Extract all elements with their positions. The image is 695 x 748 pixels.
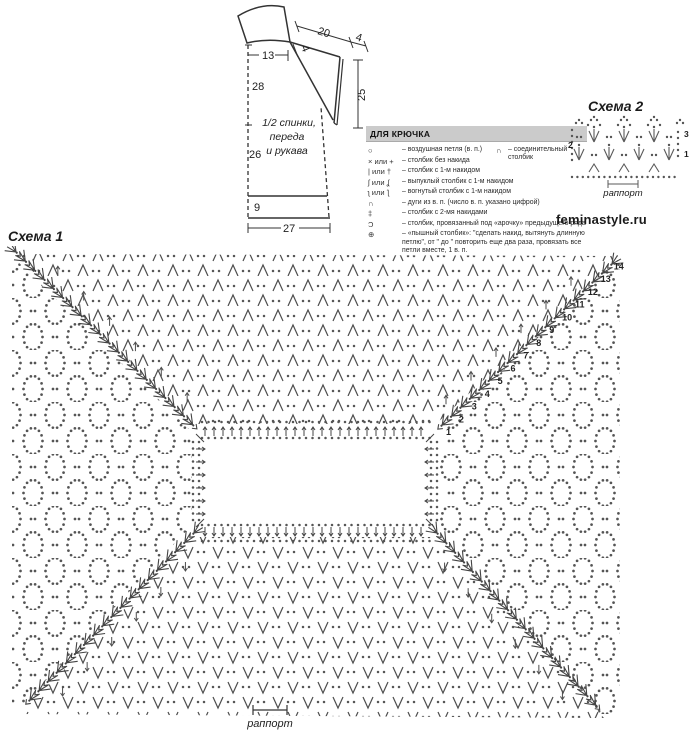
- chain-dot: [640, 136, 642, 138]
- chain-dot: [305, 524, 308, 527]
- chain-dot: [409, 524, 412, 527]
- chain-dot: [430, 499, 433, 502]
- chain-dot: [571, 159, 573, 161]
- chain-dot: [578, 144, 580, 146]
- chain-dot: [619, 176, 621, 178]
- chain-dot: [227, 540, 230, 543]
- chain-dot: [652, 176, 654, 178]
- chain-dot: [324, 540, 327, 543]
- chain-dot: [409, 437, 412, 440]
- chain-dot: [571, 129, 573, 131]
- chain-dot: [318, 540, 321, 543]
- chain-dot: [389, 524, 392, 527]
- chain-dot: [285, 540, 288, 543]
- chain-dot: [396, 421, 399, 424]
- chain-dot: [653, 126, 655, 128]
- chain-dot: [201, 524, 204, 527]
- chain-dot: [430, 519, 433, 522]
- chain-dot: [198, 499, 201, 502]
- chain-dot: [363, 437, 366, 440]
- chain-dot: [240, 437, 243, 440]
- chain-dot: [580, 136, 582, 138]
- legend-item: Ɔ– столбик, провязанный под «арочку» пре…: [366, 220, 587, 229]
- chain-dot: [436, 473, 439, 476]
- chain-dot: [198, 460, 201, 463]
- chain-dot: [430, 467, 433, 470]
- row-number: 3: [684, 129, 689, 139]
- chain-dot: [331, 540, 334, 543]
- dim-13: 13: [262, 50, 274, 62]
- chain-dot: [402, 421, 405, 424]
- chain-dot: [576, 136, 578, 138]
- legend-title: ДЛЯ КРЮЧКА: [366, 126, 587, 142]
- chain-dot: [344, 437, 347, 440]
- legend-item: | или †– столбик с 1-м накидом: [366, 167, 587, 176]
- chain-dot: [324, 421, 327, 424]
- chain-dot: [259, 437, 262, 440]
- legend-item-text: – столбик с 1-м накидом: [402, 167, 587, 176]
- chain-dot: [192, 499, 195, 502]
- chain-dot: [603, 176, 605, 178]
- chain-dot: [389, 540, 392, 543]
- chain-dot: [305, 437, 308, 440]
- chain-dot: [279, 421, 282, 424]
- chain-dot: [279, 524, 282, 527]
- chain-dot: [357, 524, 360, 527]
- schematic-outline: [238, 6, 343, 125]
- chain-dot: [677, 143, 679, 145]
- chain-dot: [436, 519, 439, 522]
- chain-dot: [370, 421, 373, 424]
- chain-dot: [198, 441, 201, 444]
- chain-dot: [344, 540, 347, 543]
- chain-dot: [370, 524, 373, 527]
- row-number: 11: [575, 300, 585, 310]
- chain-dot: [430, 512, 433, 515]
- chain-dot: [192, 519, 195, 522]
- chain-dot: [214, 540, 217, 543]
- row-number: 10: [562, 312, 572, 322]
- chain-dot: [666, 136, 668, 138]
- chain-dot: [198, 454, 201, 457]
- chain-dot: [266, 524, 269, 527]
- chain-dot: [409, 421, 412, 424]
- chain-dot: [311, 437, 314, 440]
- chain-dot: [246, 540, 249, 543]
- chain-dot: [590, 119, 592, 121]
- chain-dot: [422, 540, 425, 543]
- chain-dot: [240, 540, 243, 543]
- chain-dot: [207, 421, 210, 424]
- chain-dot: [285, 437, 288, 440]
- chain-dot: [402, 437, 405, 440]
- repeat-label: раппорт: [246, 718, 293, 730]
- chain-dot: [214, 437, 217, 440]
- chain-dot: [331, 437, 334, 440]
- chain-dot: [246, 437, 249, 440]
- chain-dot: [331, 421, 334, 424]
- chain-dot: [350, 540, 353, 543]
- chain-dot: [428, 540, 431, 543]
- chain-dot: [677, 149, 679, 151]
- chain-dot: [659, 124, 661, 126]
- chain-dot: [233, 540, 236, 543]
- chain-dot: [430, 454, 433, 457]
- chain-dot: [192, 473, 195, 476]
- dim-25: 25: [356, 89, 368, 101]
- chain-dot: [370, 540, 373, 543]
- watermark: feminastyle.ru: [556, 212, 647, 227]
- repeat-label: раппорт: [602, 188, 642, 199]
- chain-dot: [344, 421, 347, 424]
- chain-dot: [272, 524, 275, 527]
- chain-dot: [198, 486, 201, 489]
- chain-dot: [344, 524, 347, 527]
- row-number: 12: [588, 287, 598, 297]
- chain-dot: [436, 467, 439, 470]
- svg-text:1/2 спинки,: 1/2 спинки,: [262, 117, 316, 129]
- row-number: 4: [485, 389, 490, 399]
- chain-dot: [331, 524, 334, 527]
- chain-dot: [198, 480, 201, 483]
- chain-dot: [402, 540, 405, 543]
- chain-dot: [436, 506, 439, 509]
- chain-dot: [670, 136, 672, 138]
- dim-27: 27: [283, 223, 295, 235]
- chain-dot: [415, 421, 418, 424]
- chain-dot: [668, 144, 670, 146]
- chain-dot: [402, 524, 405, 527]
- legend-item: ʃ или ʆ– выпуклый столбик с 1-м накидом: [366, 178, 587, 187]
- chain-dot: [575, 122, 577, 124]
- chain-dot: [396, 437, 399, 440]
- chain-dot: [318, 524, 321, 527]
- chain-dot: [266, 540, 269, 543]
- chain-dot: [292, 524, 295, 527]
- chain-dot: [233, 437, 236, 440]
- chain-dot: [576, 176, 578, 178]
- chain-dot: [227, 437, 230, 440]
- chain-dot: [396, 524, 399, 527]
- chain-dot: [292, 540, 295, 543]
- chain-dot: [436, 460, 439, 463]
- chain-dot: [383, 524, 386, 527]
- chain-dot: [298, 524, 301, 527]
- chain-dot: [198, 493, 201, 496]
- chain-dot: [592, 176, 594, 178]
- chain-dot: [298, 540, 301, 543]
- chain-dot: [596, 119, 598, 121]
- chain-dot: [587, 124, 589, 126]
- chain-dot: [436, 486, 439, 489]
- chain-dot: [651, 154, 653, 156]
- chain-dot: [646, 176, 648, 178]
- row-number: 1: [684, 149, 689, 159]
- legend-list: ∩ – соединительный столбик ○– воздушная …: [366, 146, 587, 256]
- chain-dot: [657, 176, 659, 178]
- chain-dot: [363, 540, 366, 543]
- chain-dot: [240, 421, 243, 424]
- chain-dot: [324, 437, 327, 440]
- chain-dot: [207, 540, 210, 543]
- chain-dot: [677, 155, 679, 157]
- chain-dot: [422, 437, 425, 440]
- legend-item-text: – выпуклый столбик с 1-м накидом: [402, 178, 587, 187]
- chain-dot: [233, 524, 236, 527]
- chain-dot: [430, 473, 433, 476]
- chain-dot: [192, 467, 195, 470]
- chain-dot: [253, 540, 256, 543]
- chain-dot: [626, 119, 628, 121]
- stitch-symbol-icon: ʃ или ʆ: [366, 178, 402, 187]
- chain-dot: [682, 122, 684, 124]
- chain-dot: [428, 524, 431, 527]
- chain-dot: [198, 519, 201, 522]
- chain-dot: [383, 437, 386, 440]
- chain-dot: [409, 540, 412, 543]
- chain-dot: [227, 524, 230, 527]
- chain-dot: [656, 119, 658, 121]
- chain-dot: [376, 540, 379, 543]
- chain-dot: [623, 126, 625, 128]
- chain-dot: [259, 524, 262, 527]
- chain-dot: [357, 437, 360, 440]
- chain-dot: [253, 524, 256, 527]
- dim-4b: 4: [354, 31, 363, 44]
- chain-dot: [318, 421, 321, 424]
- svg-text:и рукава: и рукава: [266, 145, 308, 157]
- stitch-symbol-icon: | или †: [366, 167, 402, 176]
- chain-dot: [422, 421, 425, 424]
- chain-dot: [272, 540, 275, 543]
- dim-28: 28: [252, 81, 264, 93]
- dim-20: 20: [316, 25, 331, 40]
- chain-dot: [629, 124, 631, 126]
- chain-dot: [621, 154, 623, 156]
- chain-dot: [630, 176, 632, 178]
- chain-dot: [233, 421, 236, 424]
- chain-dot: [606, 136, 608, 138]
- row-number: 8: [536, 338, 541, 348]
- dim-26: 26: [249, 149, 261, 161]
- chain-dot: [337, 421, 340, 424]
- chain-dot: [436, 454, 439, 457]
- chain-dot: [266, 437, 269, 440]
- chain-dot: [608, 144, 610, 146]
- chain-dot: [617, 124, 619, 126]
- collar-shape: [238, 6, 290, 43]
- chain-dot: [581, 122, 583, 124]
- chain-dot: [677, 131, 679, 133]
- row-number: 13: [601, 274, 611, 284]
- chain-dot: [311, 524, 314, 527]
- chain-dot: [668, 176, 670, 178]
- chain-dot: [663, 176, 665, 178]
- chain-dot: [571, 176, 573, 178]
- chain-dot: [436, 480, 439, 483]
- chain-dot: [337, 437, 340, 440]
- chain-dot: [192, 480, 195, 483]
- legend-item-text: – вогнутый столбик с 1-м накидом: [402, 188, 587, 197]
- chain-dot: [357, 421, 360, 424]
- chain-dot: [614, 176, 616, 178]
- chain-dot: [587, 176, 589, 178]
- chain-dot: [311, 540, 314, 543]
- chain-dot: [324, 524, 327, 527]
- row-number: 7: [523, 351, 528, 361]
- chain-dot: [415, 524, 418, 527]
- chain-dot: [279, 437, 282, 440]
- legend-item: ʅ или ƪ– вогнутый столбик с 1-м накидом: [366, 188, 587, 197]
- chain-dot: [201, 540, 204, 543]
- scheme2-stitches: [574, 129, 674, 188]
- chain-dot: [383, 540, 386, 543]
- chain-dot: [578, 119, 580, 121]
- chain-dot: [636, 176, 638, 178]
- chain-dot: [198, 447, 201, 450]
- chain-dot: [591, 154, 593, 156]
- chain-dot: [246, 524, 249, 527]
- chain-dot: [357, 540, 360, 543]
- chain-dot: [253, 437, 256, 440]
- chain-dot: [647, 124, 649, 126]
- chain-dot: [436, 447, 439, 450]
- chain-dot: [593, 126, 595, 128]
- chain-dot: [610, 136, 612, 138]
- chain-dot: [653, 116, 655, 118]
- row-number: 14: [614, 261, 624, 271]
- chain-dot: [298, 421, 301, 424]
- chain-dot: [198, 512, 201, 515]
- scheme1-title: Схема 1: [8, 228, 63, 244]
- chain-dot: [655, 154, 657, 156]
- chain-dot: [430, 493, 433, 496]
- chain-dot: [311, 421, 314, 424]
- scheme1-chart: 1234567891011121314раппорт: [0, 246, 695, 748]
- chain-dot: [370, 437, 373, 440]
- chain-dot: [599, 124, 601, 126]
- chain-dot: [214, 421, 217, 424]
- chain-dot: [376, 524, 379, 527]
- chain-dot: [240, 524, 243, 527]
- chain-dot: [436, 512, 439, 515]
- chain-dot: [430, 506, 433, 509]
- stitch-symbol-icon: ‡: [366, 209, 402, 218]
- chain-dot: [430, 480, 433, 483]
- row-number: 9: [549, 325, 554, 335]
- chain-dot: [593, 116, 595, 118]
- chain-dot: [436, 493, 439, 496]
- chain-dot: [192, 512, 195, 515]
- chain-dot: [422, 524, 425, 527]
- chain-dot: [436, 441, 439, 444]
- chain-dot: [436, 499, 439, 502]
- chain-dot: [192, 460, 195, 463]
- stitch-symbol-icon: × или +: [366, 157, 402, 166]
- chain-dot: [383, 421, 386, 424]
- chain-dot: [198, 506, 201, 509]
- svg-text:переда: переда: [270, 131, 305, 143]
- chain-dot: [430, 486, 433, 489]
- legend-item: ∩– дуги из в. п. (число в. п. указано ци…: [366, 199, 587, 208]
- chain-dot: [430, 441, 433, 444]
- chain-dot: [227, 421, 230, 424]
- legend-item-text: – дуги из в. п. (число в. п. указано циф…: [402, 199, 587, 208]
- chain-dot: [677, 137, 679, 139]
- slip-stitch-icon: ∩: [494, 146, 508, 163]
- chain-dot: [582, 176, 584, 178]
- chain-dot: [305, 421, 308, 424]
- chain-dot: [220, 437, 223, 440]
- row-number: 2: [568, 140, 573, 150]
- row-number: 2: [459, 414, 464, 424]
- dimension-labels: 13 28 26 9 27 20 4 4 25: [249, 25, 368, 235]
- chain-dot: [259, 540, 262, 543]
- chain-dot: [207, 524, 210, 527]
- chain-dot: [220, 421, 223, 424]
- chain-dot: [201, 421, 204, 424]
- chain-dot: [650, 119, 652, 121]
- pattern-page: 13 28 26 9 27 20 4 4 25 1/2 спинки, пере…: [0, 0, 695, 748]
- chain-dot: [609, 176, 611, 178]
- chain-dot: [389, 421, 392, 424]
- chain-dot: [292, 437, 295, 440]
- chain-dot: [192, 447, 195, 450]
- chain-dot: [292, 421, 295, 424]
- chain-dot: [595, 154, 597, 156]
- stitch-symbol-icon: ○: [366, 146, 402, 155]
- neck-opening: [198, 436, 432, 525]
- chain-dot: [571, 135, 573, 137]
- chain-dot: [337, 524, 340, 527]
- chain-dot: [246, 421, 249, 424]
- chain-dot: [638, 144, 640, 146]
- legend-box: ДЛЯ КРЮЧКА ∩ – соединительный столбик ○–…: [366, 126, 587, 257]
- chain-dot: [376, 437, 379, 440]
- stitch-symbol-icon: ∩: [366, 199, 402, 208]
- chain-dot: [192, 454, 195, 457]
- chain-dot: [673, 176, 675, 178]
- row-number: 6: [511, 363, 516, 373]
- chain-dot: [220, 540, 223, 543]
- scheme2-chart: 231раппорт: [568, 110, 695, 205]
- chain-dot: [363, 524, 366, 527]
- chain-dot: [192, 486, 195, 489]
- chain-dot: [350, 437, 353, 440]
- chain-dot: [625, 176, 627, 178]
- row-number: 5: [498, 376, 503, 386]
- chain-dot: [350, 421, 353, 424]
- chain-dot: [266, 421, 269, 424]
- chain-dot: [415, 437, 418, 440]
- chain-dot: [428, 421, 431, 424]
- chain-dot: [337, 540, 340, 543]
- chain-dot: [571, 153, 573, 155]
- chain-dot: [198, 473, 201, 476]
- chain-dot: [285, 524, 288, 527]
- row-number: 3: [472, 402, 477, 412]
- chain-dot: [272, 437, 275, 440]
- chain-dot: [430, 447, 433, 450]
- chain-dot: [625, 154, 627, 156]
- chain-dot: [192, 506, 195, 509]
- piece-label: 1/2 спинки, переда и рукава: [262, 117, 316, 157]
- row-number: 1: [446, 427, 451, 437]
- chain-dot: [636, 136, 638, 138]
- chain-dot: [214, 524, 217, 527]
- chain-dot: [620, 119, 622, 121]
- chain-dot: [396, 540, 399, 543]
